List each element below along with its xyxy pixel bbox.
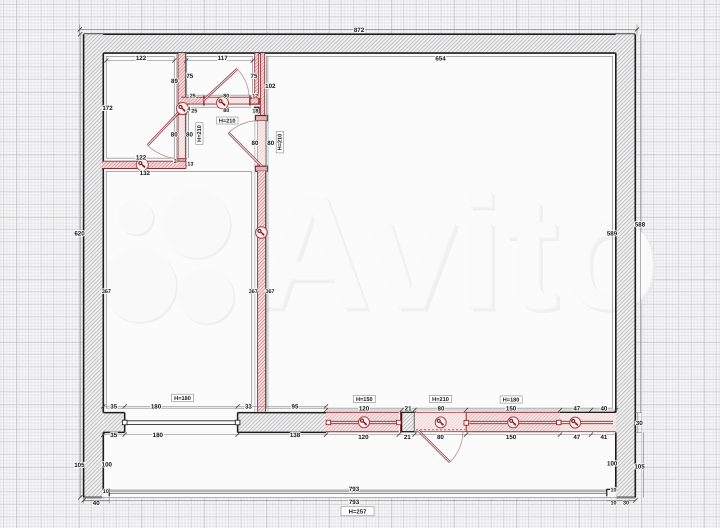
svg-text:654: 654 [435, 55, 446, 62]
svg-text:367: 367 [266, 289, 275, 295]
svg-text:122: 122 [136, 155, 147, 162]
svg-text:3: 3 [174, 159, 177, 165]
svg-text:18: 18 [252, 108, 258, 114]
svg-text:21: 21 [405, 406, 412, 413]
svg-text:589: 589 [607, 231, 618, 238]
svg-text:H=150: H=150 [356, 397, 373, 403]
svg-text:80: 80 [223, 93, 229, 99]
svg-text:H=210: H=210 [197, 125, 203, 142]
svg-text:H=210: H=210 [432, 397, 449, 403]
svg-text:H=180: H=180 [503, 398, 520, 404]
svg-text:H=210: H=210 [219, 119, 236, 125]
svg-text:138: 138 [290, 432, 301, 439]
svg-text:40: 40 [93, 500, 100, 507]
svg-text:35: 35 [110, 432, 117, 439]
svg-text:47: 47 [573, 434, 580, 441]
svg-text:H=257: H=257 [349, 509, 368, 516]
svg-text:47: 47 [573, 405, 580, 412]
svg-text:100: 100 [607, 461, 618, 468]
svg-text:367: 367 [102, 289, 111, 295]
svg-text:120: 120 [359, 406, 370, 413]
svg-text:105: 105 [634, 464, 645, 471]
svg-text:75: 75 [251, 73, 258, 80]
svg-text:10: 10 [103, 489, 109, 495]
svg-text:75: 75 [186, 73, 193, 80]
svg-text:21: 21 [404, 434, 411, 441]
svg-text:H=210: H=210 [278, 134, 284, 151]
svg-text:367: 367 [249, 289, 258, 295]
svg-text:95: 95 [292, 404, 299, 411]
svg-text:89: 89 [171, 78, 178, 85]
svg-text:180: 180 [151, 404, 162, 411]
svg-text:12: 12 [252, 93, 258, 99]
svg-text:105: 105 [74, 462, 85, 469]
svg-text:588: 588 [635, 221, 646, 228]
svg-text:25: 25 [191, 109, 197, 115]
svg-text:793: 793 [349, 499, 360, 506]
svg-text:30: 30 [623, 500, 629, 506]
svg-text:120: 120 [358, 434, 369, 441]
svg-text:41: 41 [600, 434, 607, 441]
svg-text:10: 10 [611, 500, 617, 506]
svg-text:150: 150 [506, 405, 517, 412]
svg-text:40: 40 [600, 405, 607, 412]
svg-text:Avito: Avito [254, 162, 661, 343]
svg-text:100: 100 [102, 461, 113, 468]
svg-text:102: 102 [265, 83, 276, 90]
svg-text:150: 150 [506, 434, 517, 441]
svg-text:80: 80 [252, 140, 259, 147]
svg-text:33: 33 [245, 404, 252, 411]
svg-text:H=180: H=180 [174, 396, 191, 402]
svg-text:180: 180 [153, 432, 164, 439]
svg-text:793: 793 [349, 486, 360, 493]
svg-text:4: 4 [187, 106, 190, 112]
svg-text:80: 80 [186, 132, 193, 139]
svg-text:80: 80 [438, 406, 445, 413]
svg-text:10: 10 [611, 487, 617, 493]
svg-text:620: 620 [74, 231, 85, 238]
svg-text:80: 80 [267, 140, 274, 147]
svg-text:80: 80 [171, 132, 178, 139]
svg-text:25: 25 [190, 93, 196, 99]
svg-text:13: 13 [187, 162, 193, 168]
svg-text:172: 172 [102, 105, 113, 112]
svg-text:132: 132 [140, 170, 151, 177]
svg-text:872: 872 [354, 27, 365, 34]
svg-text:35: 35 [110, 404, 117, 411]
svg-text:80: 80 [437, 434, 444, 441]
svg-text:80: 80 [223, 108, 229, 114]
svg-text:117: 117 [218, 55, 229, 62]
svg-text:30: 30 [636, 420, 643, 427]
svg-text:122: 122 [136, 55, 147, 62]
